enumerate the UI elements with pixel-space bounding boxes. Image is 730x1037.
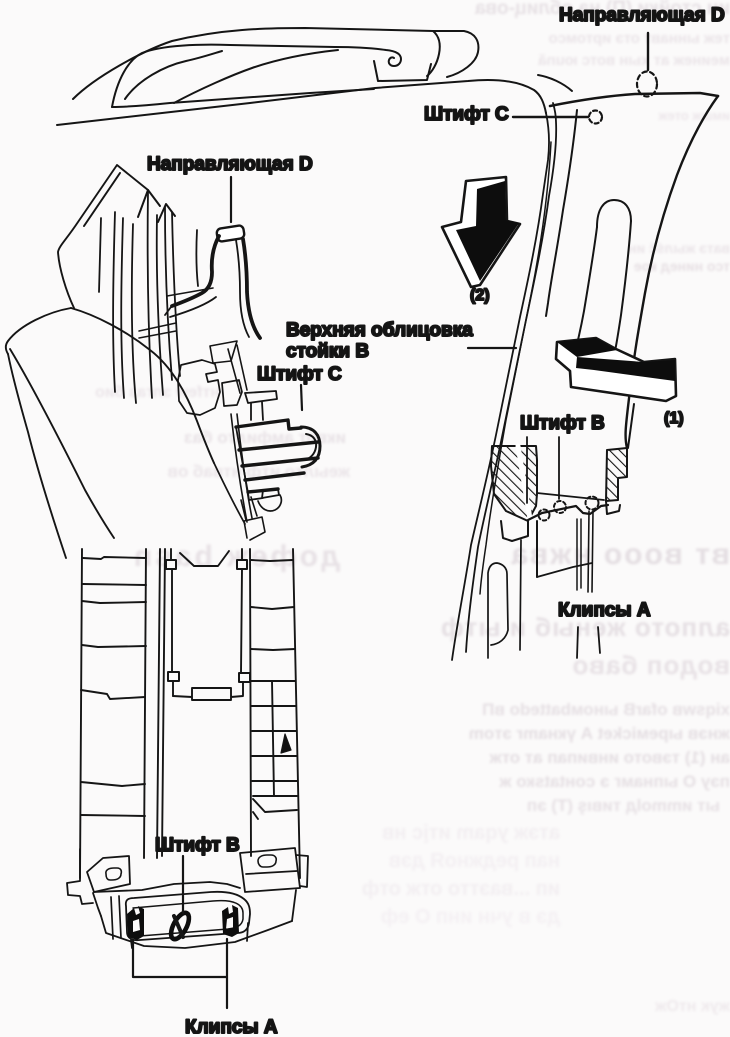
- svg-text:Штифт B: Штифт B: [520, 413, 605, 434]
- svg-text:Направляющая D: Направляющая D: [147, 154, 313, 175]
- svg-text:Штифт C: Штифт C: [424, 104, 509, 125]
- svg-text:Штифт C: Штифт C: [257, 364, 342, 385]
- svg-text:стойки B: стойки B: [286, 341, 369, 362]
- svg-text:Направляющая D: Направляющая D: [559, 5, 725, 26]
- svg-text:Штифт B: Штифт B: [155, 835, 240, 856]
- svg-text:(1): (1): [664, 410, 684, 427]
- svg-text:Клипсы А: Клипсы А: [185, 1017, 278, 1037]
- svg-text:Верхняя облицовка: Верхняя облицовка: [286, 320, 473, 341]
- svg-text:Клипсы А: Клипсы А: [558, 600, 651, 621]
- svg-text:(2): (2): [470, 287, 490, 304]
